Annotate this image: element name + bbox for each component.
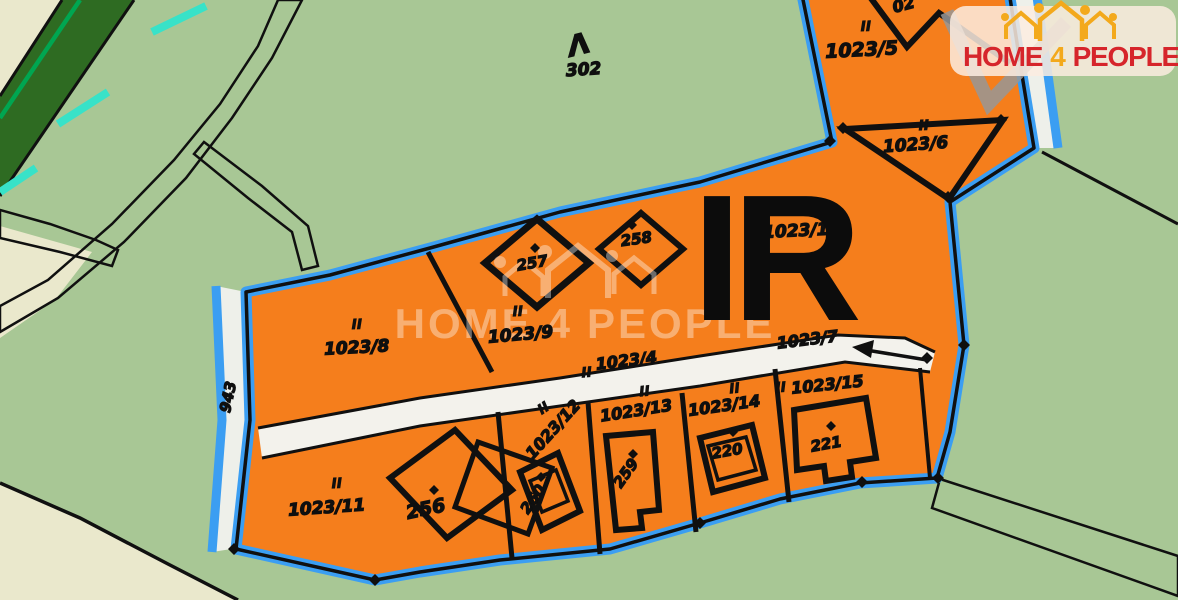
land-use-class-mark: II (639, 384, 651, 401)
land-use-class-mark: II (729, 381, 741, 398)
logo-person-icon (1109, 13, 1117, 21)
logo-person-icon (1001, 13, 1009, 21)
watermark-person-icon (606, 250, 618, 262)
map-overlay-label-ir: IR (692, 158, 859, 359)
land-use-class-mark: II (351, 317, 362, 333)
land-use-class-mark: II (860, 19, 871, 35)
logo-person-icon (1034, 3, 1044, 13)
parcel-label-1023-5: 1023/5 (825, 37, 899, 63)
land-use-class-mark: II (331, 476, 342, 493)
land-use-class-mark: II (918, 118, 929, 135)
cadastral-map-screenshot: HOME4PEOPLE 1023/5II1023/6II1023/10II102… (0, 0, 1178, 600)
land-use-class-mark: II (775, 380, 787, 397)
land-use-class-mark: II (512, 304, 523, 321)
parcel-label-1023-8: 1023/8 (324, 336, 390, 359)
land-use-class-mark: II (581, 365, 593, 382)
watermark-person-icon (494, 256, 506, 268)
cadastral-map: HOME4PEOPLE 1023/5II1023/6II1023/10II102… (0, 0, 1178, 600)
map-label-302: 302 (565, 59, 602, 81)
logo-person-icon (1080, 5, 1090, 15)
